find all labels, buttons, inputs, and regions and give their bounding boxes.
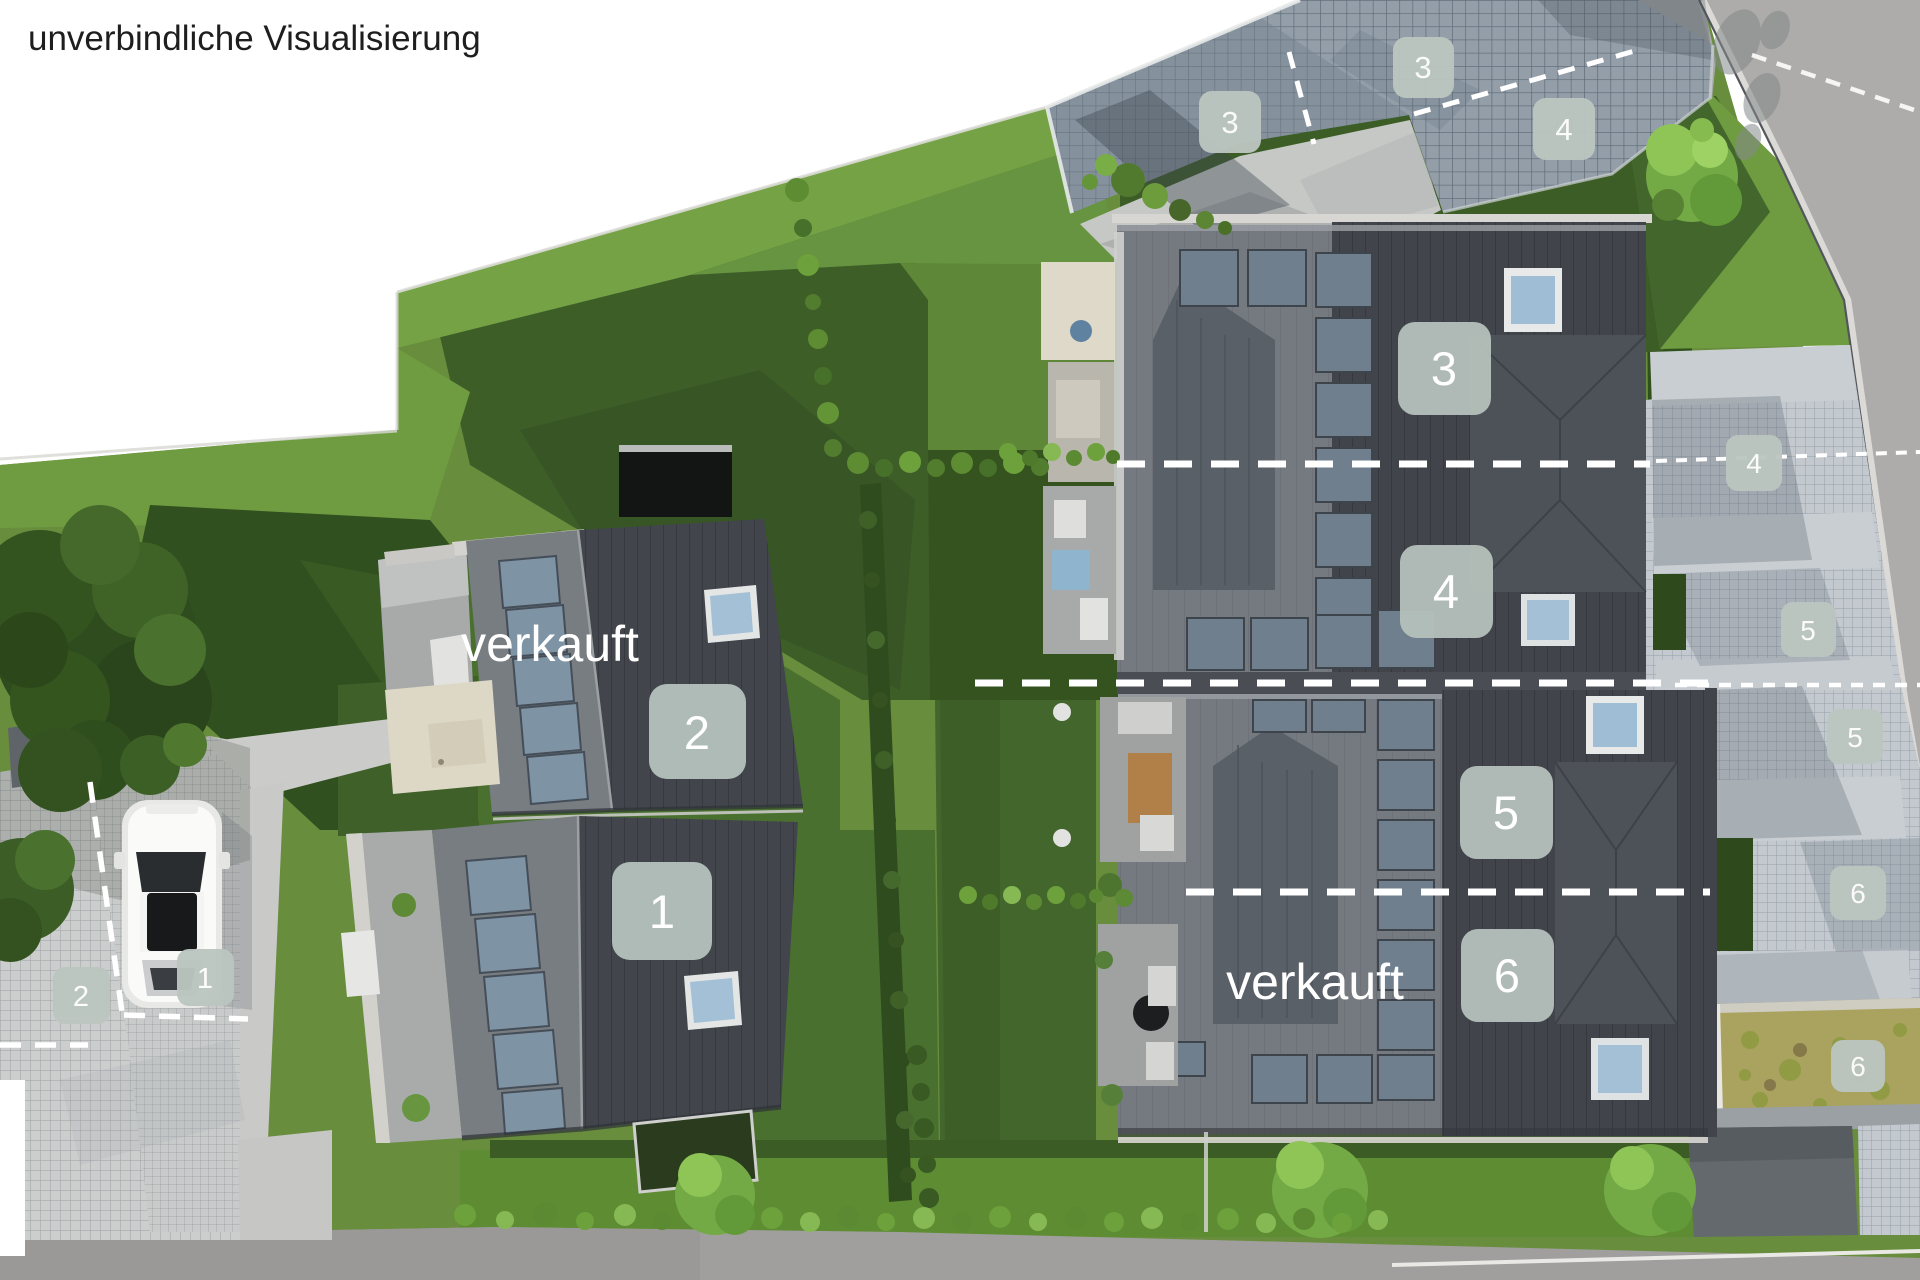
svg-text:6: 6 (1850, 1051, 1866, 1082)
svg-text:2: 2 (73, 981, 89, 1013)
svg-text:verkauft: verkauft (461, 616, 639, 672)
svg-text:verkauft: verkauft (1226, 954, 1404, 1010)
svg-text:1: 1 (197, 963, 213, 995)
svg-text:4: 4 (1746, 448, 1762, 479)
svg-text:unverbindliche Visualisierung: unverbindliche Visualisierung (28, 19, 481, 58)
svg-text:4: 4 (1433, 565, 1459, 618)
svg-text:3: 3 (1431, 342, 1457, 395)
svg-text:1: 1 (649, 885, 675, 938)
svg-text:3: 3 (1414, 50, 1431, 85)
svg-text:5: 5 (1847, 722, 1863, 753)
svg-text:5: 5 (1800, 615, 1816, 646)
svg-text:6: 6 (1494, 949, 1520, 1002)
svg-text:2: 2 (684, 706, 710, 759)
svg-text:5: 5 (1493, 786, 1519, 839)
svg-text:3: 3 (1221, 105, 1238, 140)
svg-text:4: 4 (1555, 112, 1572, 147)
svg-text:6: 6 (1850, 878, 1866, 909)
